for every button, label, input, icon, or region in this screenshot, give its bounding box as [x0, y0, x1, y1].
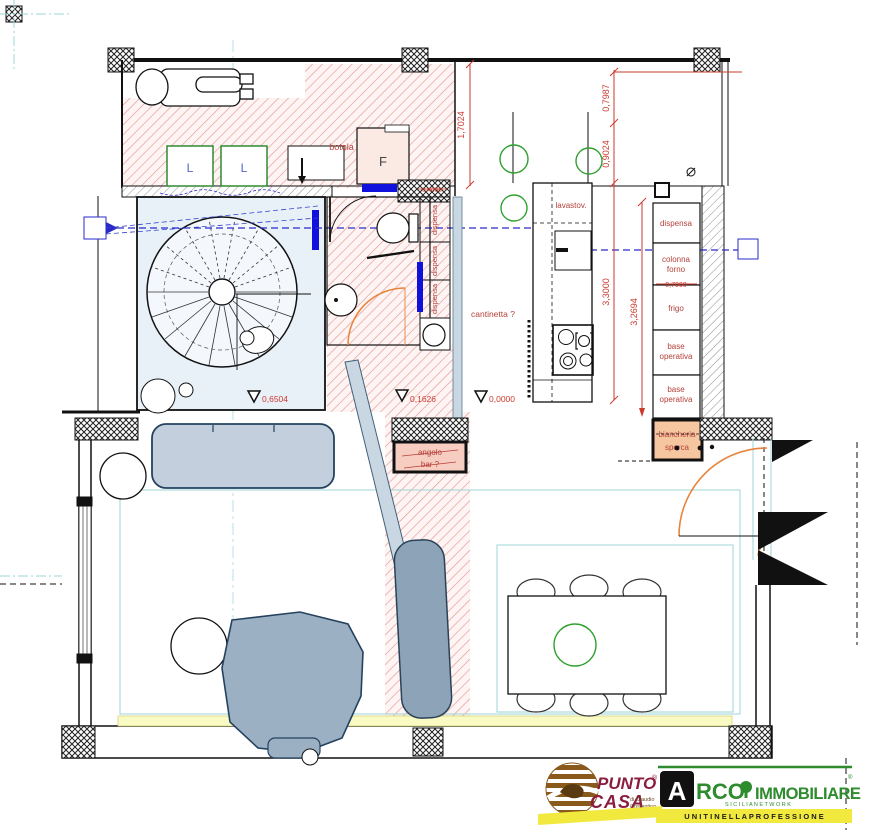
arco-reg: ®: [848, 774, 853, 781]
immobiliare-text: IMMOBILIARE: [755, 785, 861, 803]
dim-0-7000: 0,7000: [665, 282, 687, 289]
kitchen-island: lavastov.: [500, 112, 602, 402]
punto-reg: ®: [652, 774, 658, 782]
punto-text: PUNTO: [597, 774, 656, 793]
arco-rco-text: RCO: [696, 779, 745, 804]
logo-arco-immobiliare: A RCO IMMOBILIARE ® S I C I L I A N E T …: [656, 767, 861, 823]
grand-piano: [222, 612, 363, 753]
dining-set: [508, 575, 666, 716]
window-marker-3: [417, 262, 423, 312]
window-marker-2: [312, 210, 319, 250]
unit-base1-label-1: base: [667, 342, 685, 351]
unit-oven-label-1: colonna: [662, 255, 691, 264]
lounge-poufs: [393, 539, 452, 719]
pantry-label-3: dispensa: [430, 283, 439, 314]
arco-a-letter: A: [668, 776, 687, 806]
unit-fridge-label: frigo: [668, 304, 684, 313]
toilet: [377, 213, 418, 243]
sicilia-network-text: S I C I L I A N E T W O R K: [725, 802, 791, 808]
floor-plan-sheet: L L botola 120x120 F 0,4000: [0, 0, 869, 833]
level-0-0000: 0,0000: [489, 394, 515, 404]
bed: [136, 69, 253, 106]
sink: [325, 284, 357, 316]
unit-dispensa-label: dispensa: [660, 219, 693, 228]
unit-base2-label-1: base: [667, 385, 685, 394]
dim-3-3000: 3,3000: [601, 278, 611, 306]
wardrobe-right-label: L: [241, 161, 248, 175]
floor-plan-drawing: L L botola 120x120 F 0,4000: [0, 0, 869, 833]
laundry-basket: [653, 420, 702, 460]
logo-punto-casa: PUNTO ® CASA di Claudio Costantino: [538, 763, 662, 825]
wardrobe-left-label: L: [187, 161, 194, 175]
dim-1-7024: 1,7024: [456, 111, 466, 139]
level-0-1626: 0,1626: [410, 394, 436, 404]
dim-3-2694: 3,2694: [629, 298, 639, 326]
round-armchair: [171, 618, 227, 674]
fireplace-label: F: [379, 154, 387, 169]
unit-base1-label-2: operativa: [660, 352, 693, 361]
kitchen-sink: [555, 231, 591, 270]
cantinetta-label: cantinetta ?: [471, 309, 515, 319]
bar-corner: angolo bar ?: [392, 418, 468, 472]
arco-banner-text: U N I T I N E L L A P R O F E S S I O N …: [684, 812, 823, 821]
dim-0-7987: 0,7987: [601, 84, 611, 112]
bar-label-1: angolo: [418, 448, 443, 457]
dining-table: [508, 596, 666, 694]
dim-0-4000: 0,4000: [422, 187, 442, 194]
pantry-label-2: dispensa: [430, 245, 439, 276]
dim-0-9024: 0,9024: [601, 140, 611, 168]
punto-casa-sub-1: di Claudio: [630, 797, 654, 803]
side-table: [100, 453, 146, 499]
level-0-6504: 0,6504: [262, 394, 288, 404]
glass-partition: [453, 197, 462, 445]
window-marker-1: [362, 184, 397, 192]
unit-base2-label-2: operativa: [660, 395, 693, 404]
pantry-label-1: dispensa: [430, 204, 439, 235]
sofa: [152, 424, 334, 488]
dishwasher-label: lavastov.: [556, 201, 587, 210]
unit-oven-label-2: forno: [667, 265, 686, 274]
laundry-label-1: biancheria: [659, 430, 696, 439]
